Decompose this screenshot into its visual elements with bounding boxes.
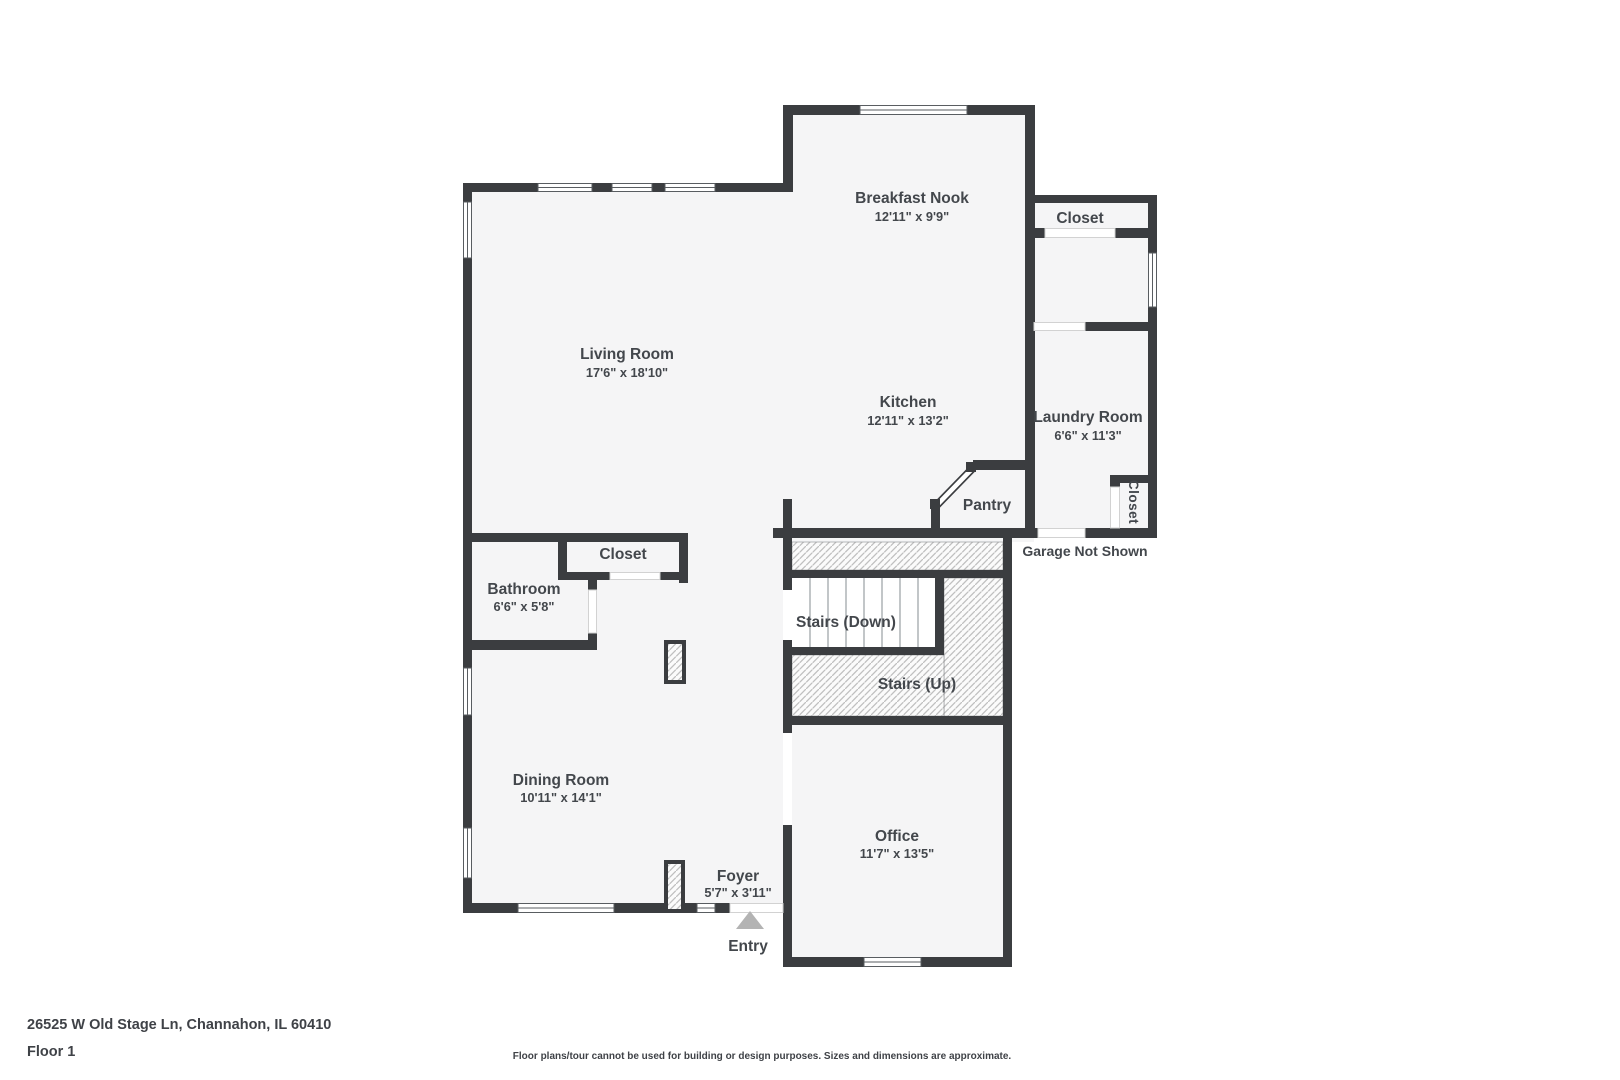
window <box>665 184 715 192</box>
floor-label: Floor 1 <box>27 1044 75 1060</box>
label-kitchen: Kitchen <box>880 394 937 411</box>
entry-arrow-icon <box>736 911 764 929</box>
dims-living-room: 17'6" x 18'10" <box>586 365 668 380</box>
window <box>860 106 967 115</box>
floor-plan-svg: Breakfast Nook 12'11" x 9'9" Closet Livi… <box>0 0 1620 1080</box>
label-closet-upper: Closet <box>1056 210 1103 227</box>
dims-laundry-room: 6'6" x 11'3" <box>1054 428 1121 443</box>
stairs-down-treads <box>792 578 935 647</box>
window <box>612 184 652 192</box>
label-foyer: Foyer <box>717 868 759 885</box>
window <box>518 904 614 913</box>
window <box>864 958 921 967</box>
window <box>697 904 715 913</box>
dims-office: 11'7" x 13'5" <box>860 846 934 861</box>
dims-breakfast-nook: 12'11" x 9'9" <box>875 209 949 224</box>
dims-foyer: 5'7" x 3'11" <box>704 885 771 900</box>
label-office: Office <box>875 828 919 845</box>
label-entry: Entry <box>728 938 768 955</box>
floor-plan-page: Breakfast Nook 12'11" x 9'9" Closet Livi… <box>0 0 1620 1080</box>
window <box>1149 253 1157 307</box>
label-stairs-down: Stairs (Down) <box>796 614 896 631</box>
label-pantry: Pantry <box>963 497 1012 514</box>
label-laundry-closet: Closet <box>1126 480 1141 524</box>
label-breakfast-nook: Breakfast Nook <box>855 190 969 207</box>
label-living-room: Living Room <box>580 346 674 363</box>
address-text: 26525 W Old Stage Ln, Channahon, IL 6041… <box>27 1017 331 1033</box>
label-garage-note: Garage Not Shown <box>1022 543 1147 559</box>
window <box>464 828 472 878</box>
dims-bathroom: 6'6" x 5'8" <box>494 599 555 614</box>
window <box>538 184 592 192</box>
label-stairs-up: Stairs (Up) <box>878 676 956 693</box>
window <box>464 668 472 715</box>
disclaimer-text: Floor plans/tour cannot be used for buil… <box>513 1051 1011 1062</box>
window <box>464 202 472 258</box>
dims-dining-room: 10'11" x 14'1" <box>520 790 602 805</box>
dims-kitchen: 12'11" x 13'2" <box>867 413 949 428</box>
label-hall-closet: Closet <box>599 546 646 563</box>
label-dining-room: Dining Room <box>513 772 609 789</box>
label-laundry-room: Laundry Room <box>1033 409 1142 426</box>
label-bathroom: Bathroom <box>487 581 560 598</box>
